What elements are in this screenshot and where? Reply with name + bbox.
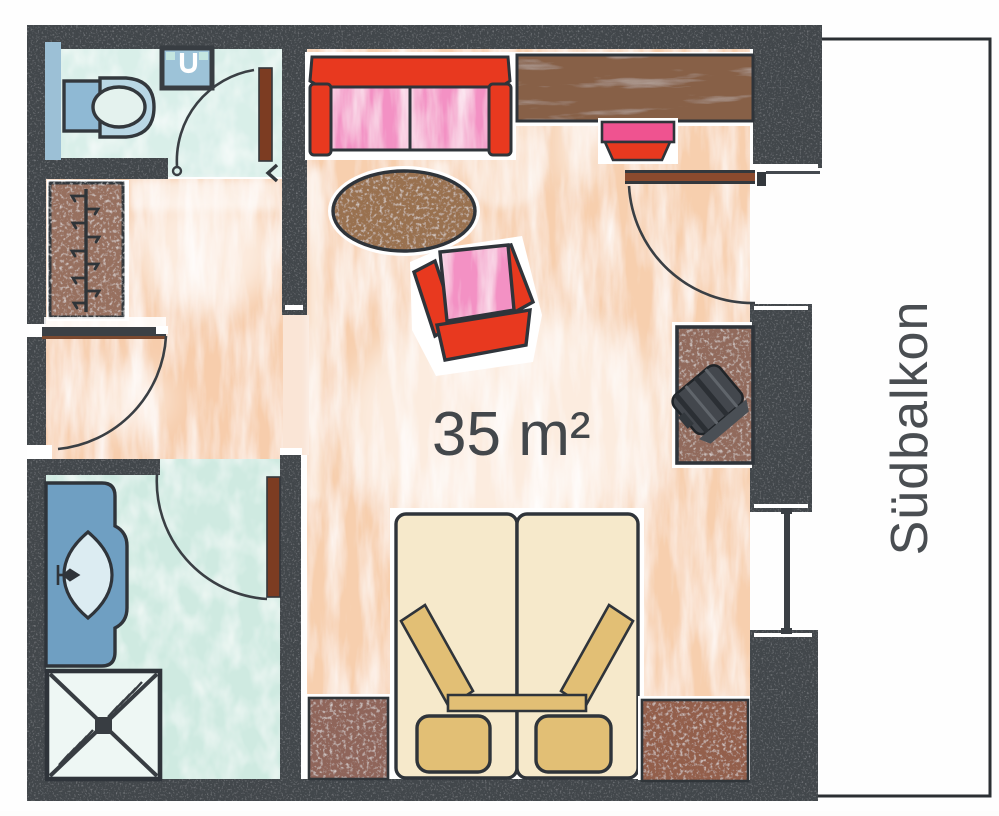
svg-text:35 m²: 35 m²: [432, 400, 590, 469]
svg-text:Südbalkon: Südbalkon: [881, 301, 939, 556]
